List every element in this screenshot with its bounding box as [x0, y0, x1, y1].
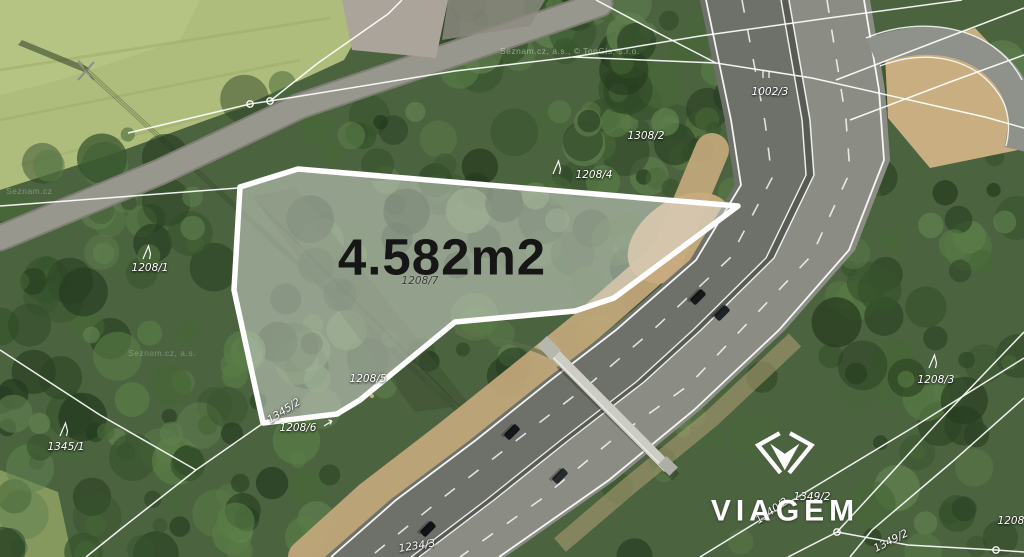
viagem-logo: VIAGEM: [711, 426, 859, 529]
survey-marker: [370, 394, 374, 398]
viagem-logo-icon: [750, 426, 820, 488]
gravel-area: [342, 0, 448, 58]
viagem-logo-text: VIAGEM: [711, 495, 859, 529]
parcel-area-label: 4.582m2: [338, 228, 546, 287]
map-canvas: 1002/31308/21208/41208/11208/71208/51345…: [0, 0, 1024, 557]
